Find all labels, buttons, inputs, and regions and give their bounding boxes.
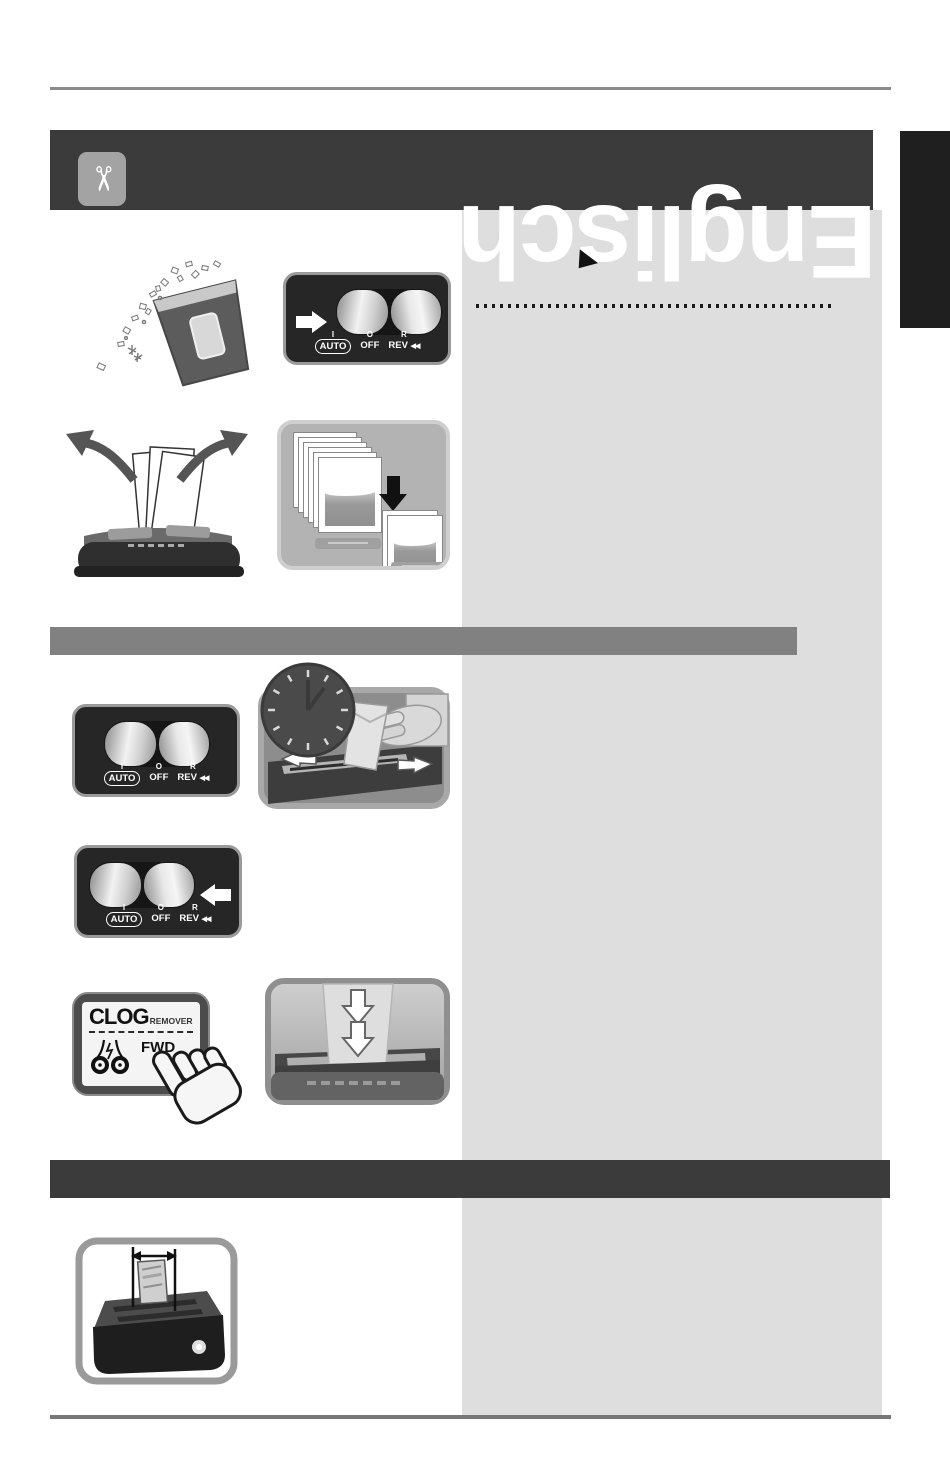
rewind-icon: ◀◀ [202, 916, 211, 923]
manual-page: ✂ Englisch [0, 0, 950, 1468]
mode-label-off: OFF [360, 339, 379, 352]
rocker-switch [104, 721, 210, 767]
dotted-leader-line [476, 304, 836, 308]
timed-insert-illustration [256, 660, 452, 812]
rocker-right-pill [391, 290, 442, 334]
remove-paper-illustration [56, 418, 258, 580]
rewind-icon: ◀◀ [200, 775, 209, 782]
rocker-switch [336, 289, 442, 335]
mode-label-auto: AUTO [315, 339, 352, 354]
feed-paper-illustration [265, 978, 450, 1105]
dashed-divider [89, 1031, 193, 1033]
clog-title: CLOG [89, 1006, 149, 1028]
card-slot-width-illustration [75, 1237, 238, 1385]
clock-icon [262, 664, 354, 756]
clog-subtitle: REMOVER [150, 1016, 193, 1026]
front-sheet [318, 457, 382, 533]
rocker-right-pill [144, 863, 195, 907]
sheet-stack-illustration [277, 420, 450, 570]
bottom-rule [50, 1415, 891, 1419]
mode-label-rev: REV ◀◀ [388, 339, 419, 353]
position-label: R [401, 330, 407, 339]
switch-labels: I AUTO O OFF R REV ◀◀ [286, 330, 448, 354]
top-rule [50, 87, 891, 90]
switch-labels: I AUTO O OFF R REV ◀◀ [77, 903, 239, 927]
switch-labels: I AUTO O OFF R REV ◀◀ [75, 762, 237, 786]
rocker-left-pill [90, 863, 141, 907]
scissors-icon: ✂ [78, 152, 126, 206]
rocker-switch-panel-auto: I AUTO O OFF R REV ◀◀ [283, 272, 451, 365]
language-side-tab [900, 131, 950, 328]
section-divider-dark [50, 1160, 890, 1198]
rocker-switch-panel-plain: I AUTO O OFF R REV ◀◀ [72, 704, 240, 797]
rewind-icon: ◀◀ [411, 343, 420, 350]
position-label: I [332, 330, 334, 339]
emptied-basket-illustration [68, 252, 266, 392]
text-column-background [462, 210, 882, 1418]
position-label: O [367, 330, 373, 339]
roller-jam-icon [89, 1037, 133, 1075]
rocker-left-pill [105, 722, 156, 766]
rocker-left-pill [337, 290, 388, 334]
language-title: Englisch [452, 176, 884, 306]
rocker-switch-panel-reverse: I AUTO O OFF R REV ◀◀ [74, 845, 242, 938]
arrow-down-icon [387, 476, 400, 496]
section-divider-gray [50, 627, 797, 655]
scissors-glyph: ✂ [85, 165, 119, 194]
rocker-right-pill [159, 722, 210, 766]
pressing-hand-icon [150, 1040, 262, 1148]
rocker-switch [89, 862, 195, 908]
arrow-up-left-icon [66, 430, 134, 480]
